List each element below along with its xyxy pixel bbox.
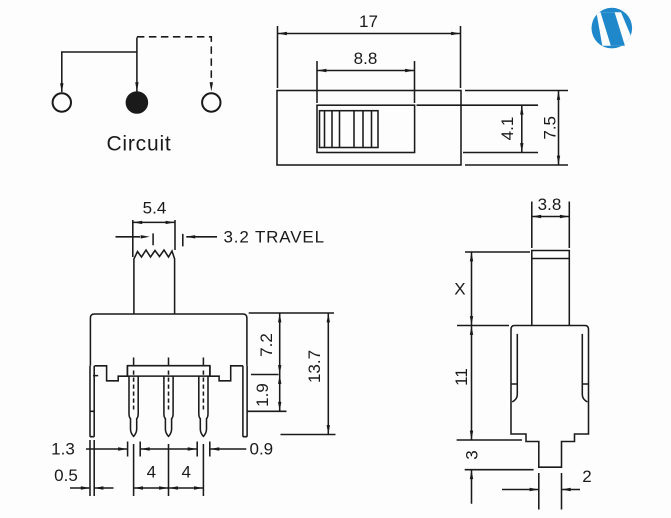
svg-text:17: 17 (359, 12, 378, 31)
svg-text:3.2 TRAVEL: 3.2 TRAVEL (224, 227, 325, 246)
svg-text:X: X (454, 280, 465, 299)
svg-text:Circuit: Circuit (106, 133, 171, 156)
svg-text:5.4: 5.4 (143, 199, 167, 218)
svg-text:4: 4 (147, 463, 156, 482)
svg-text:4: 4 (181, 463, 190, 482)
svg-text:11: 11 (452, 368, 471, 386)
svg-text:7.2: 7.2 (257, 333, 276, 357)
svg-text:2: 2 (582, 467, 591, 486)
svg-text:7.5: 7.5 (541, 116, 560, 140)
svg-text:8.8: 8.8 (354, 49, 378, 68)
svg-text:1.9: 1.9 (253, 383, 272, 407)
svg-text:1.3: 1.3 (51, 439, 75, 458)
svg-text:4.1: 4.1 (498, 117, 517, 141)
svg-text:3.8: 3.8 (538, 195, 562, 214)
svg-text:13.7: 13.7 (305, 350, 324, 383)
svg-text:0.9: 0.9 (250, 440, 274, 459)
svg-text:3: 3 (463, 450, 482, 459)
svg-text:0.5: 0.5 (54, 466, 78, 485)
